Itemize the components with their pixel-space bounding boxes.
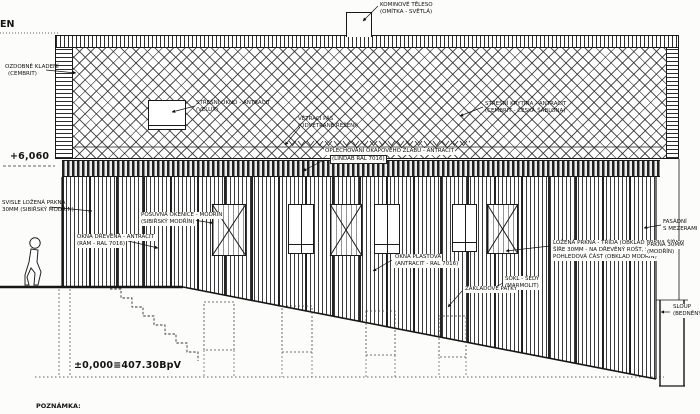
callout-windows-left: OKNA DŘEVĚNÁ - ANTRACIT (RÁM - RAL 7016) [76,234,155,248]
drawing-title-fragment: EN [0,19,14,30]
callout-boards-right: PRKNA 30MM (MODŘÍN) [646,242,685,256]
callout-column: SLOUP (BEDNĚNÝ) [672,304,700,318]
elevation-drawing-sheet: EN [0,0,700,414]
roof-right-edge-band [666,47,678,158]
window [374,204,400,254]
callout-text: (ANTRACIT - RAL 7016) [394,261,459,268]
roof-hatch-area [55,35,679,159]
window [452,204,477,252]
callout-text: (RÁM - RAL 7016) [76,241,126,248]
callout-decor-cladding: OZDOBNÉ KLADENÍ (CEMBRIT) [5,64,59,78]
callout-text: (SIBIŘSKÝ MODŘÍN) [140,219,196,226]
callout-facade-gap: FASÁDNÍ S MEZERAMI [663,219,697,233]
note-label: POZNÁMKA: [36,402,81,410]
callout-chimney: KOMINOVÉ TĚLESO (OMÍTKA - SVĚTLÁ) [380,2,433,16]
callout-text: S MEZERAMI [663,226,697,233]
callout-text: POHLEDOVÁ ČÁST (OBKLAD MODŘÍN) [552,254,658,261]
roof-window [148,100,186,130]
level-label-ground: ±0,000≡407.30BpV [74,360,181,371]
callout-text: OZDOBNÉ KLADENÍ [5,64,59,71]
callout-roofing: STŘEŠNÍ KRYTINA - ANTRACIT (CEMBRIT - ČE… [485,101,566,115]
callout-text: (MODŘÍN) [646,249,675,256]
callout-text: STŘEŠNÍ OKNO - ANTRACIT [196,100,270,107]
callout-text: SOKL - ŠEDÝ [504,276,540,283]
callout-vent-strip: VĚTRACÍ PÁS (ODVĚTRANÉ ŘEŠENÍ) [298,116,358,130]
shutter-panel [487,204,518,254]
shutter-panel [330,204,362,256]
callout-text: (OMÍTKA - SVĚTLÁ) [380,9,433,16]
callout-text: (CEMBRIT) [5,71,59,78]
person-figure [25,238,41,285]
callout-text: 30MM (SIBIŘSKÝ MODŘÍN) [2,207,74,214]
callout-windows-center: OKNA PLASTOVÁ (ANTRACIT - RAL 7016) [394,254,459,268]
level-label-eaves: +6,060 [10,151,49,162]
callout-footings: ZÁKLADOVÉ PATKY [464,286,518,293]
callout-text: (BEDNĚNÝ) [672,311,700,318]
callout-siding-boards: SVISLE LOŽENÁ PRKNA 30MM (SIBIŘSKÝ MODŘÍ… [2,200,74,214]
chimney [346,12,372,37]
callout-text: (CEMBRIT - ČESKÁ ŠABLONA) [485,108,566,115]
callout-gutter: OPLECHOVÁNÍ OKAPOVÉHO ŽLABU - ANTRACIT (… [324,148,455,164]
callout-text: (VELUX) [196,107,270,114]
callout-text: OPLECHOVÁNÍ OKAPOVÉHO ŽLABU - ANTRACIT [324,148,455,155]
callout-roof-window: STŘEŠNÍ OKNO - ANTRACIT (VELUX) [196,100,270,114]
callout-text: (ODVĚTRANÉ ŘEŠENÍ) [298,123,358,130]
callout-text: OKNA PLASTOVÁ [394,254,442,261]
callout-text: FASÁDNÍ [663,219,697,226]
callout-text: (LINDAB RAL 7016) [330,155,387,164]
callout-shutter: POSUVNÁ OKENICE - MODŘÍN (SIBIŘSKÝ MODŘÍ… [140,212,223,226]
callout-text: ZÁKLADOVÉ PATKY [464,286,518,293]
window [288,204,314,254]
hidden-stairs [110,289,198,361]
